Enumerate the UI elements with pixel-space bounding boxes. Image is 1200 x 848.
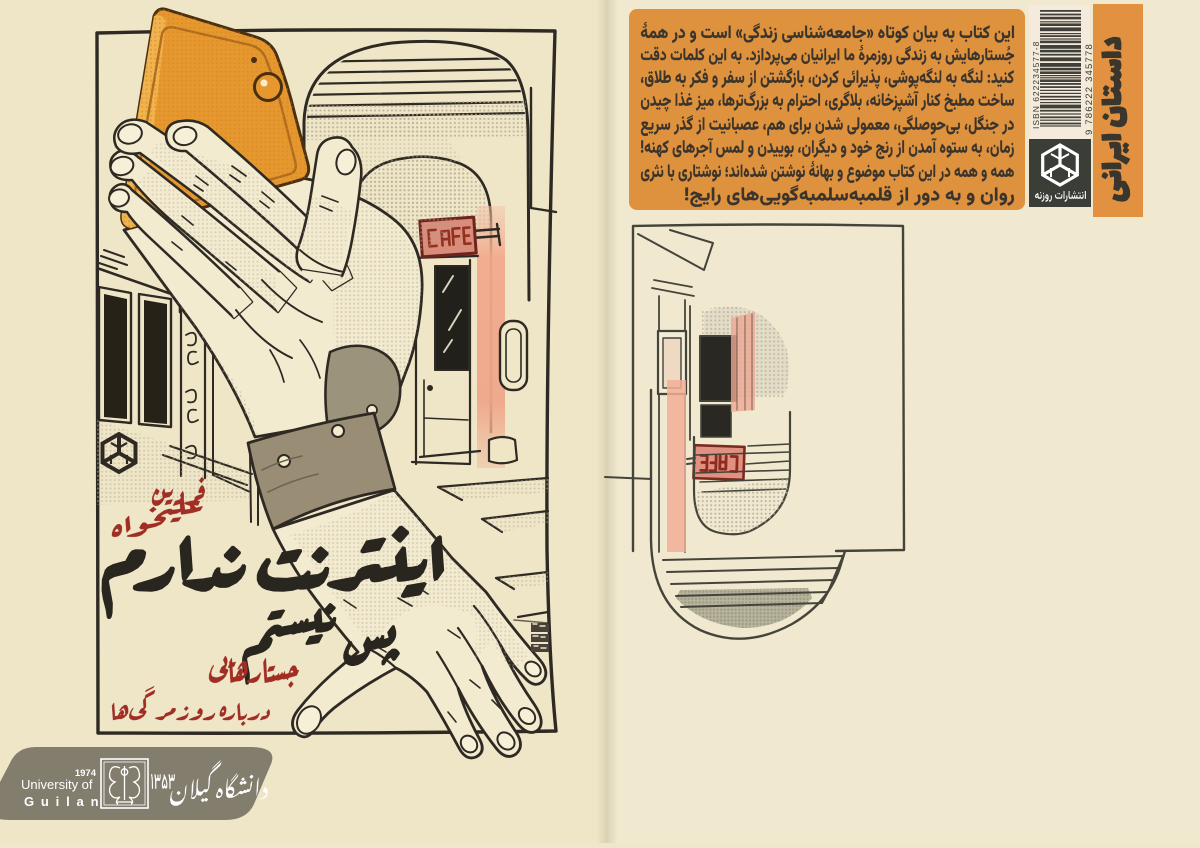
svg-text:G u i l a n: G u i l a n (24, 794, 100, 809)
svg-text:University of: University of (21, 777, 93, 792)
svg-text:ISBN 622234577-8: ISBN 622234577-8 (1031, 41, 1041, 129)
